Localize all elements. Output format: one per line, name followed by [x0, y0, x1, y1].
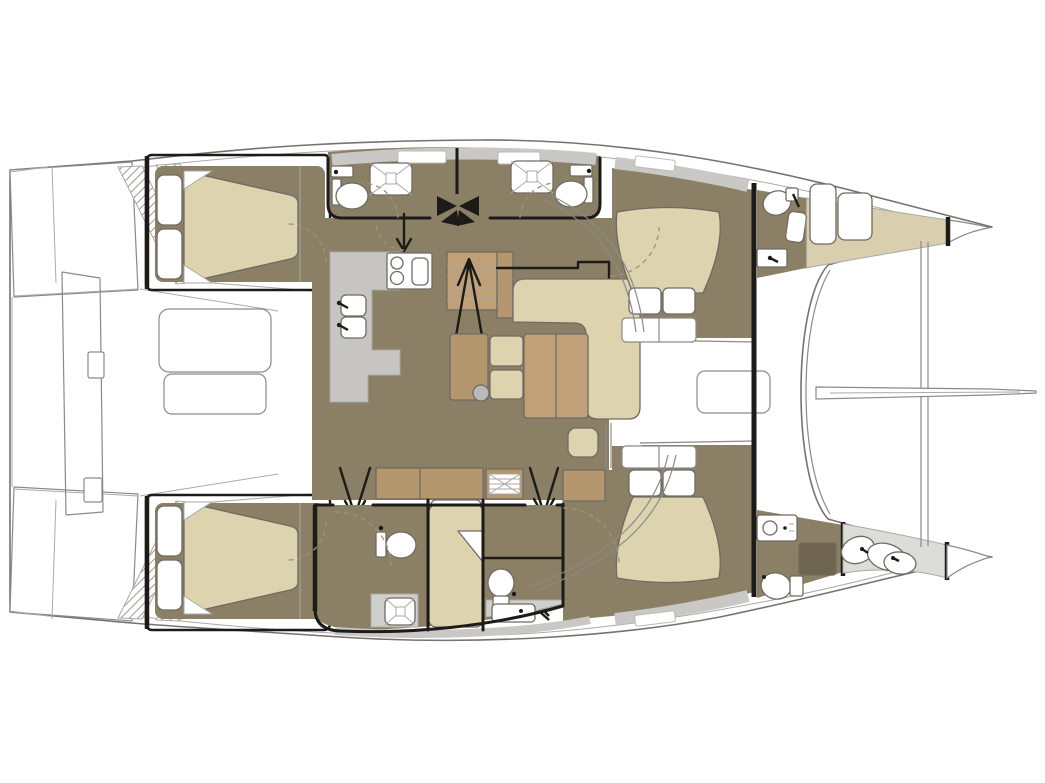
shower-icon [385, 598, 415, 625]
forepeak-cushion [810, 184, 836, 244]
pillow [157, 229, 182, 279]
floor-plan-canvas [0, 0, 1045, 783]
pillow [157, 506, 182, 556]
pillow [629, 288, 661, 314]
starboard-transom-platform [10, 487, 138, 621]
wardrobe-cabinet [563, 470, 605, 501]
stove-icon [387, 253, 432, 289]
cabinet [497, 252, 513, 318]
pillow [157, 560, 182, 610]
port-transom-platform [10, 162, 138, 297]
bow-tip [947, 545, 990, 578]
port-bathrooms [328, 147, 600, 226]
dinette-seat [490, 336, 523, 366]
foredeck-strip-corner [609, 419, 642, 446]
starboard-bow [757, 510, 990, 602]
pillow [629, 470, 661, 496]
catamaran-floor-plan [0, 0, 1045, 783]
starboard-aft-cabin [146, 495, 330, 630]
pillow [663, 288, 695, 314]
shower-tray [799, 543, 836, 575]
trampoline [806, 241, 1036, 547]
port-aft-cabin [146, 155, 330, 290]
forepeak-cushion [838, 193, 872, 240]
sideboard-cabinet [376, 468, 483, 499]
island-berth [616, 497, 720, 583]
side-deck-band [332, 154, 596, 161]
cockpit-bench [164, 374, 266, 414]
shower-seat [785, 211, 807, 243]
bow-tip [948, 220, 990, 243]
pillow [157, 175, 182, 225]
vent-hatch-icon [486, 469, 523, 499]
cockpit-table [159, 309, 271, 372]
hull-window [398, 151, 446, 163]
stool [473, 385, 489, 401]
shower-icon [511, 161, 553, 193]
shower-icon [370, 163, 412, 195]
bed-steps [622, 318, 696, 342]
sink-icon [757, 249, 787, 267]
dinette-seat [490, 370, 523, 399]
deck-hatch [697, 371, 770, 413]
ottoman-pouf [568, 428, 598, 457]
washer-icon [757, 515, 797, 541]
bed-steps [622, 446, 696, 468]
single-berth-cabin [429, 500, 483, 627]
single-berth [429, 505, 483, 627]
